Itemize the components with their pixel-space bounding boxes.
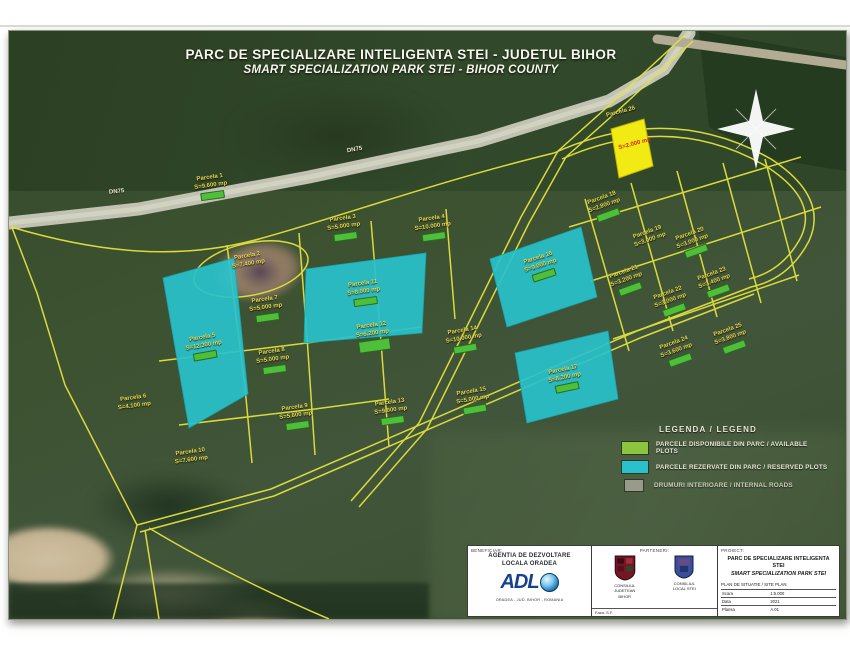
project-info-table: Scara 1:5.000 Data 2021 Plansa A.01 bbox=[721, 589, 836, 613]
project-subtitle: PLAN DE SITUATIE / SITE PLAN bbox=[721, 582, 836, 587]
partner-shields: CONSILIUL JUDETEAN BIHOR CONSILIUL bbox=[595, 555, 714, 599]
table-row: Scara 1:5.000 bbox=[721, 589, 836, 597]
stei-caption-line2: LOCAL STEI bbox=[656, 586, 712, 591]
parcel-label: Parcela 7S=5.000 mp bbox=[248, 295, 284, 324]
parcel-label: Parcela 1S=9.600 mp bbox=[193, 173, 229, 202]
parcel-label: Parcela 12S=6.200 mp bbox=[355, 321, 392, 354]
row-date-label: Data bbox=[721, 597, 769, 605]
legend-swatch-reserved bbox=[621, 460, 649, 474]
project-title-line2: SMART SPECIALIZATION PARK STEI bbox=[721, 571, 836, 578]
adlo-logo-letters: ADL bbox=[500, 571, 538, 594]
site-plan-map: PARC DE SPECIALIZARE INTELIGENTA STEI - … bbox=[8, 30, 847, 620]
row-sheet-value: A.01 bbox=[769, 605, 836, 613]
parcel-label: Parcela 4S=10.000 mp bbox=[413, 213, 453, 242]
legend-label-roads: DRUMURI INTERIOARE / INTERNAL ROADS bbox=[654, 482, 793, 489]
legend-item-roads: DRUMURI INTERIOARE / INTERNAL ROADS bbox=[621, 479, 831, 492]
partner-bihor: CONSILIUL JUDETEAN BIHOR bbox=[597, 555, 653, 599]
row-scale-label: Scara bbox=[721, 589, 769, 597]
parcel-label: Parcela 9S=5.600 mp bbox=[278, 403, 314, 432]
table-row: Plansa A.01 bbox=[721, 605, 836, 613]
bihor-coat-of-arms-icon bbox=[614, 555, 636, 581]
parcel-label: Parcela 11S=8.000 mp bbox=[346, 279, 382, 308]
road-label: DJ763 bbox=[61, 601, 79, 607]
table-row: Data 2021 bbox=[721, 597, 836, 605]
partner-stei: CONSILIUL LOCAL STEI bbox=[656, 555, 712, 592]
legend-swatch-roads bbox=[624, 479, 644, 492]
map-title-line2: SMART SPECIALIZATION PARK STEI - BIHOR C… bbox=[101, 64, 701, 76]
map-title: PARC DE SPECIALIZARE INTELIGENTA STEI - … bbox=[101, 47, 701, 76]
project-title-line1: PARC DE SPECIALIZARE INTELIGENTA STEI bbox=[721, 556, 836, 571]
partner-stei-caption: CONSILIUL LOCAL STEI bbox=[656, 581, 712, 592]
legend-label-reserved: PARCELE REZERVATE DIN PARC / RESERVED PL… bbox=[656, 464, 827, 471]
parcel-label: Parcela 8S=5.000 mp bbox=[255, 347, 291, 376]
legend: LEGENDA / LEGEND PARCELE DISPONIBILE DIN… bbox=[621, 425, 831, 497]
scan-artifact-line bbox=[0, 25, 850, 27]
project-panel: PROIECT: PARC DE SPECIALIZARE INTELIGENT… bbox=[718, 546, 839, 616]
map-title-line1: PARC DE SPECIALIZARE INTELIGENTA STEI - … bbox=[101, 47, 701, 62]
title-block: BENEFICIAR: AGENTIA DE DEZVOLTARE LOCALA… bbox=[467, 545, 840, 617]
row-sheet-label: Plansa bbox=[721, 605, 769, 613]
partners-footer: Faza: S.F. bbox=[592, 608, 717, 616]
beneficiary-name-line1: AGENTIA DE DEZVOLTARE bbox=[471, 553, 588, 561]
adlo-logo: ADL bbox=[471, 571, 588, 595]
beneficiary-footer: ORADEA - JUD. BIHOR - ROMANIA bbox=[471, 598, 588, 602]
parcel-label: Parcela 3S=5.000 mp bbox=[326, 214, 362, 243]
legend-title: LEGENDA / LEGEND bbox=[659, 425, 831, 434]
parcel-label: Parcela 13S=9.000 mp bbox=[373, 398, 409, 427]
partners-label: PARTENERI: bbox=[595, 548, 714, 553]
legend-item-available: PARCELE DISPONIBILE DIN PARC / AVAILABLE… bbox=[621, 441, 831, 455]
adlo-globe-icon bbox=[540, 573, 559, 592]
beneficiary-name-line2: LOCALA ORADEA bbox=[471, 561, 588, 569]
beneficiary-panel: BENEFICIAR: AGENTIA DE DEZVOLTARE LOCALA… bbox=[468, 546, 592, 616]
legend-item-reserved: PARCELE REZERVATE DIN PARC / RESERVED PL… bbox=[621, 460, 831, 474]
page: PARC DE SPECIALIZARE INTELIGENTA STEI - … bbox=[0, 0, 850, 657]
partners-panel: PARTENERI: CONSILIUL JUDETEAN bbox=[592, 546, 718, 616]
row-date-value: 2021 bbox=[769, 597, 836, 605]
project-title: PARC DE SPECIALIZARE INTELIGENTA STEI SM… bbox=[721, 556, 836, 578]
legend-swatch-available bbox=[621, 441, 649, 455]
project-label: PROIECT: bbox=[721, 548, 836, 553]
partner-bihor-caption: CONSILIUL JUDETEAN BIHOR bbox=[597, 583, 653, 599]
legend-label-available: PARCELE DISPONIBILE DIN PARC / AVAILABLE… bbox=[656, 441, 831, 455]
row-scale-value: 1:5.000 bbox=[769, 589, 836, 597]
road-and-parcel-overlay bbox=[9, 31, 846, 619]
stei-coat-of-arms-icon bbox=[674, 555, 694, 579]
bihor-caption-line3: BIHOR bbox=[597, 594, 653, 599]
